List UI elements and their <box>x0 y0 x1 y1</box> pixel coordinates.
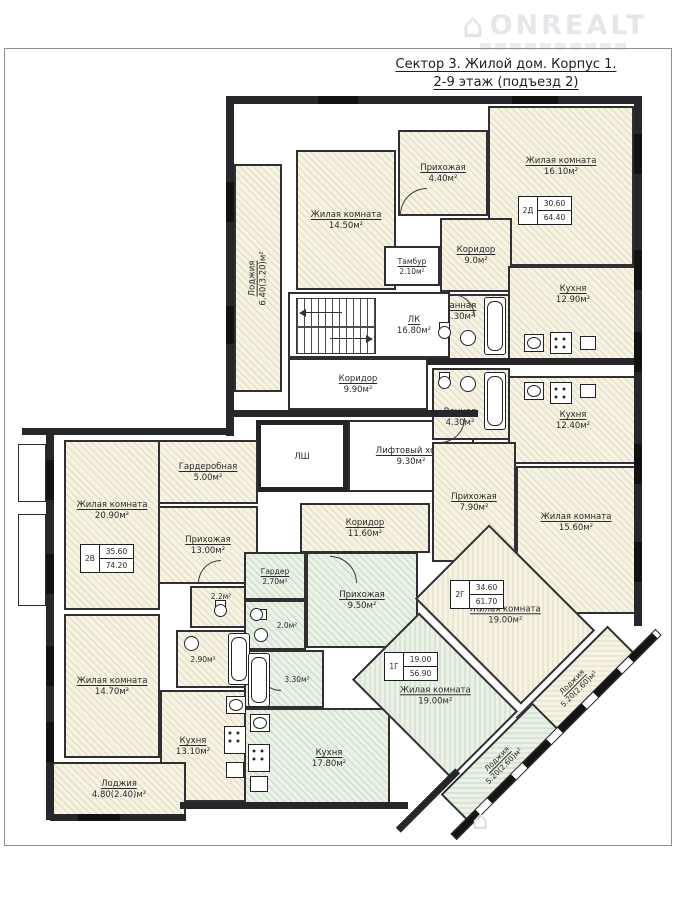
apartment-info-2g: 2Г 34.60 61.70 <box>450 580 504 609</box>
kitchen-sink-icon <box>524 382 544 400</box>
living-area: 19.00 <box>404 653 437 667</box>
bathtub-icon <box>228 633 250 685</box>
window-mark <box>634 444 642 484</box>
plan-title: Сектор 3. Жилой дом. Корпус 1. 2-9 этаж … <box>330 56 678 92</box>
window-mark <box>634 134 642 174</box>
stair-direction-arrow <box>306 312 342 313</box>
floor-plan-sheet: ⌂ ONREALT Сектор 3. Жилой дом. Корпус 1.… <box>0 0 678 910</box>
sink-icon <box>254 628 268 642</box>
bathtub-icon <box>484 297 506 355</box>
apartment-info-2v: 2В 35.60 74.20 <box>80 544 134 573</box>
living-area: 30.60 <box>538 197 571 211</box>
apartment-info-1g: 1Г 19.00 56.90 <box>384 652 438 681</box>
elevator-shaft-lsh: ЛШ <box>256 420 348 492</box>
stove-icon <box>224 726 246 754</box>
sink-icon <box>460 376 476 392</box>
window-mark <box>318 96 358 104</box>
interior-wall <box>428 358 636 365</box>
window-mark <box>46 646 54 686</box>
toilet-icon <box>438 372 451 389</box>
living-area: 35.60 <box>100 545 133 559</box>
staircase <box>296 298 376 354</box>
living-area: 34.60 <box>470 581 503 595</box>
kitchen-sink-icon <box>524 334 544 352</box>
exterior-wall <box>226 96 642 104</box>
plan-title-line1: Сектор 3. Жилой дом. Корпус 1. <box>330 56 678 74</box>
room-tambour: Тамбур 2.10м² <box>384 246 440 286</box>
room-loggia-top: Лоджия 6.40(3.20)м² <box>234 164 282 392</box>
toilet-icon <box>250 608 267 621</box>
room-corridor-9-0: Коридор 9.0м² <box>440 218 512 292</box>
plan-title-line2: 2-9 этаж (подъезд 2) <box>330 74 678 92</box>
window-mark <box>226 182 234 222</box>
apartment-info-2d: 2Д 30.60 64.40 <box>518 196 572 225</box>
balcony-outline <box>18 514 46 606</box>
stair-direction-arrow <box>330 338 366 339</box>
stove-icon <box>248 744 270 772</box>
sink-icon <box>184 636 199 651</box>
window-mark <box>46 460 54 500</box>
total-area: 64.40 <box>538 211 571 224</box>
appliance-icon <box>250 776 268 792</box>
window-mark <box>512 96 558 104</box>
total-area: 74.20 <box>100 559 133 572</box>
total-area: 56.90 <box>404 667 437 680</box>
appliance-icon <box>580 336 596 350</box>
exterior-wall <box>180 802 408 809</box>
appliance-icon <box>226 762 244 778</box>
bathtub-icon <box>484 372 506 430</box>
onrealt-house-icon-faint: ⌂ <box>472 806 489 836</box>
interior-wall <box>226 410 478 417</box>
stove-icon <box>550 382 572 404</box>
room-wardrobe-2-70: Гардер 2.70м² <box>244 552 306 600</box>
room-corridor-9-90: Коридор 9.90м² <box>288 358 428 410</box>
room-corridor-11-60: Коридор 11.60м² <box>300 503 430 553</box>
toilet-icon <box>438 322 451 339</box>
room-wardrobe-5-00: Гардеробная 5.00м² <box>158 440 258 504</box>
exterior-wall <box>226 96 234 436</box>
stove-icon <box>550 332 572 354</box>
window-mark <box>634 332 642 372</box>
room-living-14-70: Жилая комната 14.70м² <box>64 614 160 758</box>
onrealt-brand: ONREALT <box>490 10 648 41</box>
window-mark <box>634 250 642 290</box>
kitchen-sink-icon <box>226 696 246 714</box>
window-mark <box>78 814 120 821</box>
room-loggia-4-80: Лоджия 4.80(2.40)м² <box>52 762 186 816</box>
window-mark <box>634 542 642 582</box>
window-mark <box>226 306 234 344</box>
bathtub-icon <box>248 653 270 707</box>
balcony-outline <box>18 444 46 502</box>
window-mark <box>46 722 54 762</box>
onrealt-house-icon: ⌂ <box>462 11 484 41</box>
toilet-icon <box>214 600 227 617</box>
room-label: Лоджия 6.40(3.20)м² <box>248 251 269 305</box>
total-area: 61.70 <box>470 595 503 608</box>
room-living-20-90: Жилая комната 20.90м² <box>64 440 160 610</box>
sink-icon <box>460 330 476 346</box>
appliance-icon <box>580 384 596 398</box>
kitchen-sink-icon <box>250 714 270 732</box>
window-mark <box>46 554 54 594</box>
onrealt-watermark: ⌂ ONREALT <box>462 10 647 50</box>
room-label: Жилая комната 19.00м² <box>400 685 471 706</box>
room-living-14-50: Жилая комната 14.50м² <box>296 150 396 290</box>
